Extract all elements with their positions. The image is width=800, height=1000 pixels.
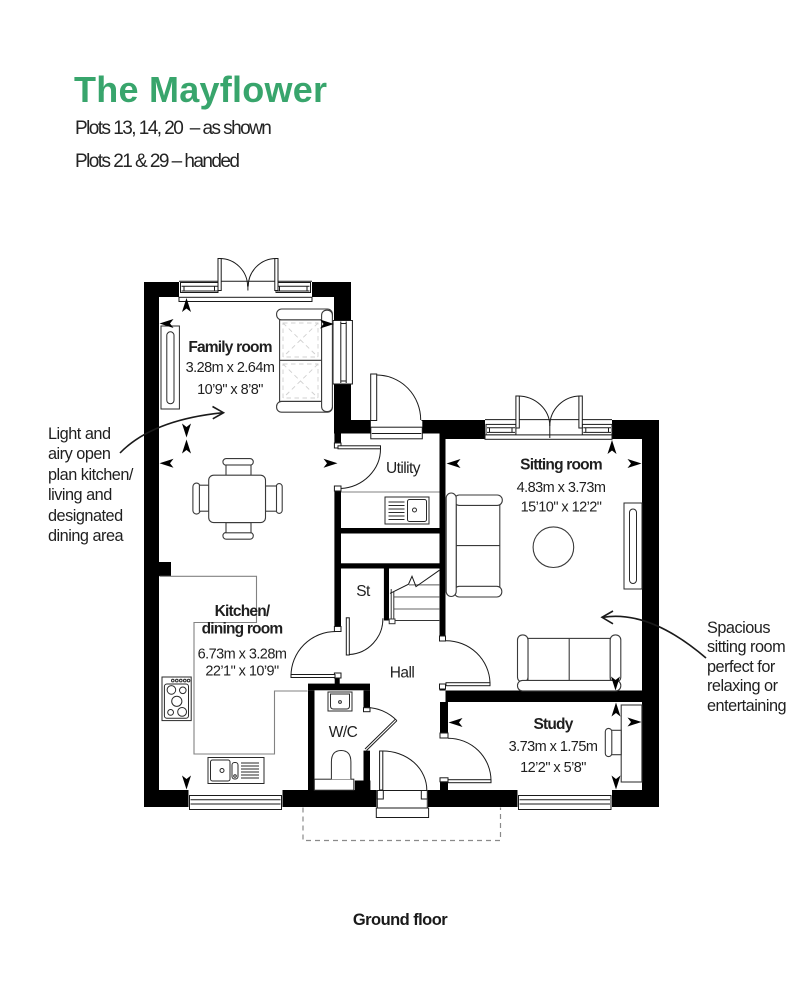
svg-text:Sitting room: Sitting room: [520, 457, 602, 474]
svg-text:4.83m x 3.73m: 4.83m x 3.73m: [517, 480, 606, 496]
svg-text:W/C: W/C: [329, 724, 358, 741]
svg-text:Family room: Family room: [188, 339, 271, 356]
svg-text:St: St: [356, 583, 371, 600]
svg-text:Utility: Utility: [386, 460, 421, 477]
svg-text:Kitchen/: Kitchen/: [215, 603, 271, 620]
svg-text:dining room: dining room: [202, 621, 283, 638]
svg-text:6.73m x 3.28m: 6.73m x 3.28m: [198, 647, 287, 663]
svg-text:10’9" x 8’8": 10’9" x 8’8": [197, 382, 263, 398]
svg-text:15’10" x 12’2": 15’10" x 12’2": [521, 500, 602, 516]
svg-text:3.28m x 2.64m: 3.28m x 2.64m: [186, 360, 275, 376]
svg-text:22’1" x 10’9": 22’1" x 10’9": [205, 664, 279, 680]
svg-text:12’2" x 5’8": 12’2" x 5’8": [520, 760, 586, 776]
svg-text:3.73m x 1.75m: 3.73m x 1.75m: [509, 739, 598, 755]
svg-text:Hall: Hall: [390, 665, 415, 682]
svg-text:Study: Study: [533, 716, 573, 733]
